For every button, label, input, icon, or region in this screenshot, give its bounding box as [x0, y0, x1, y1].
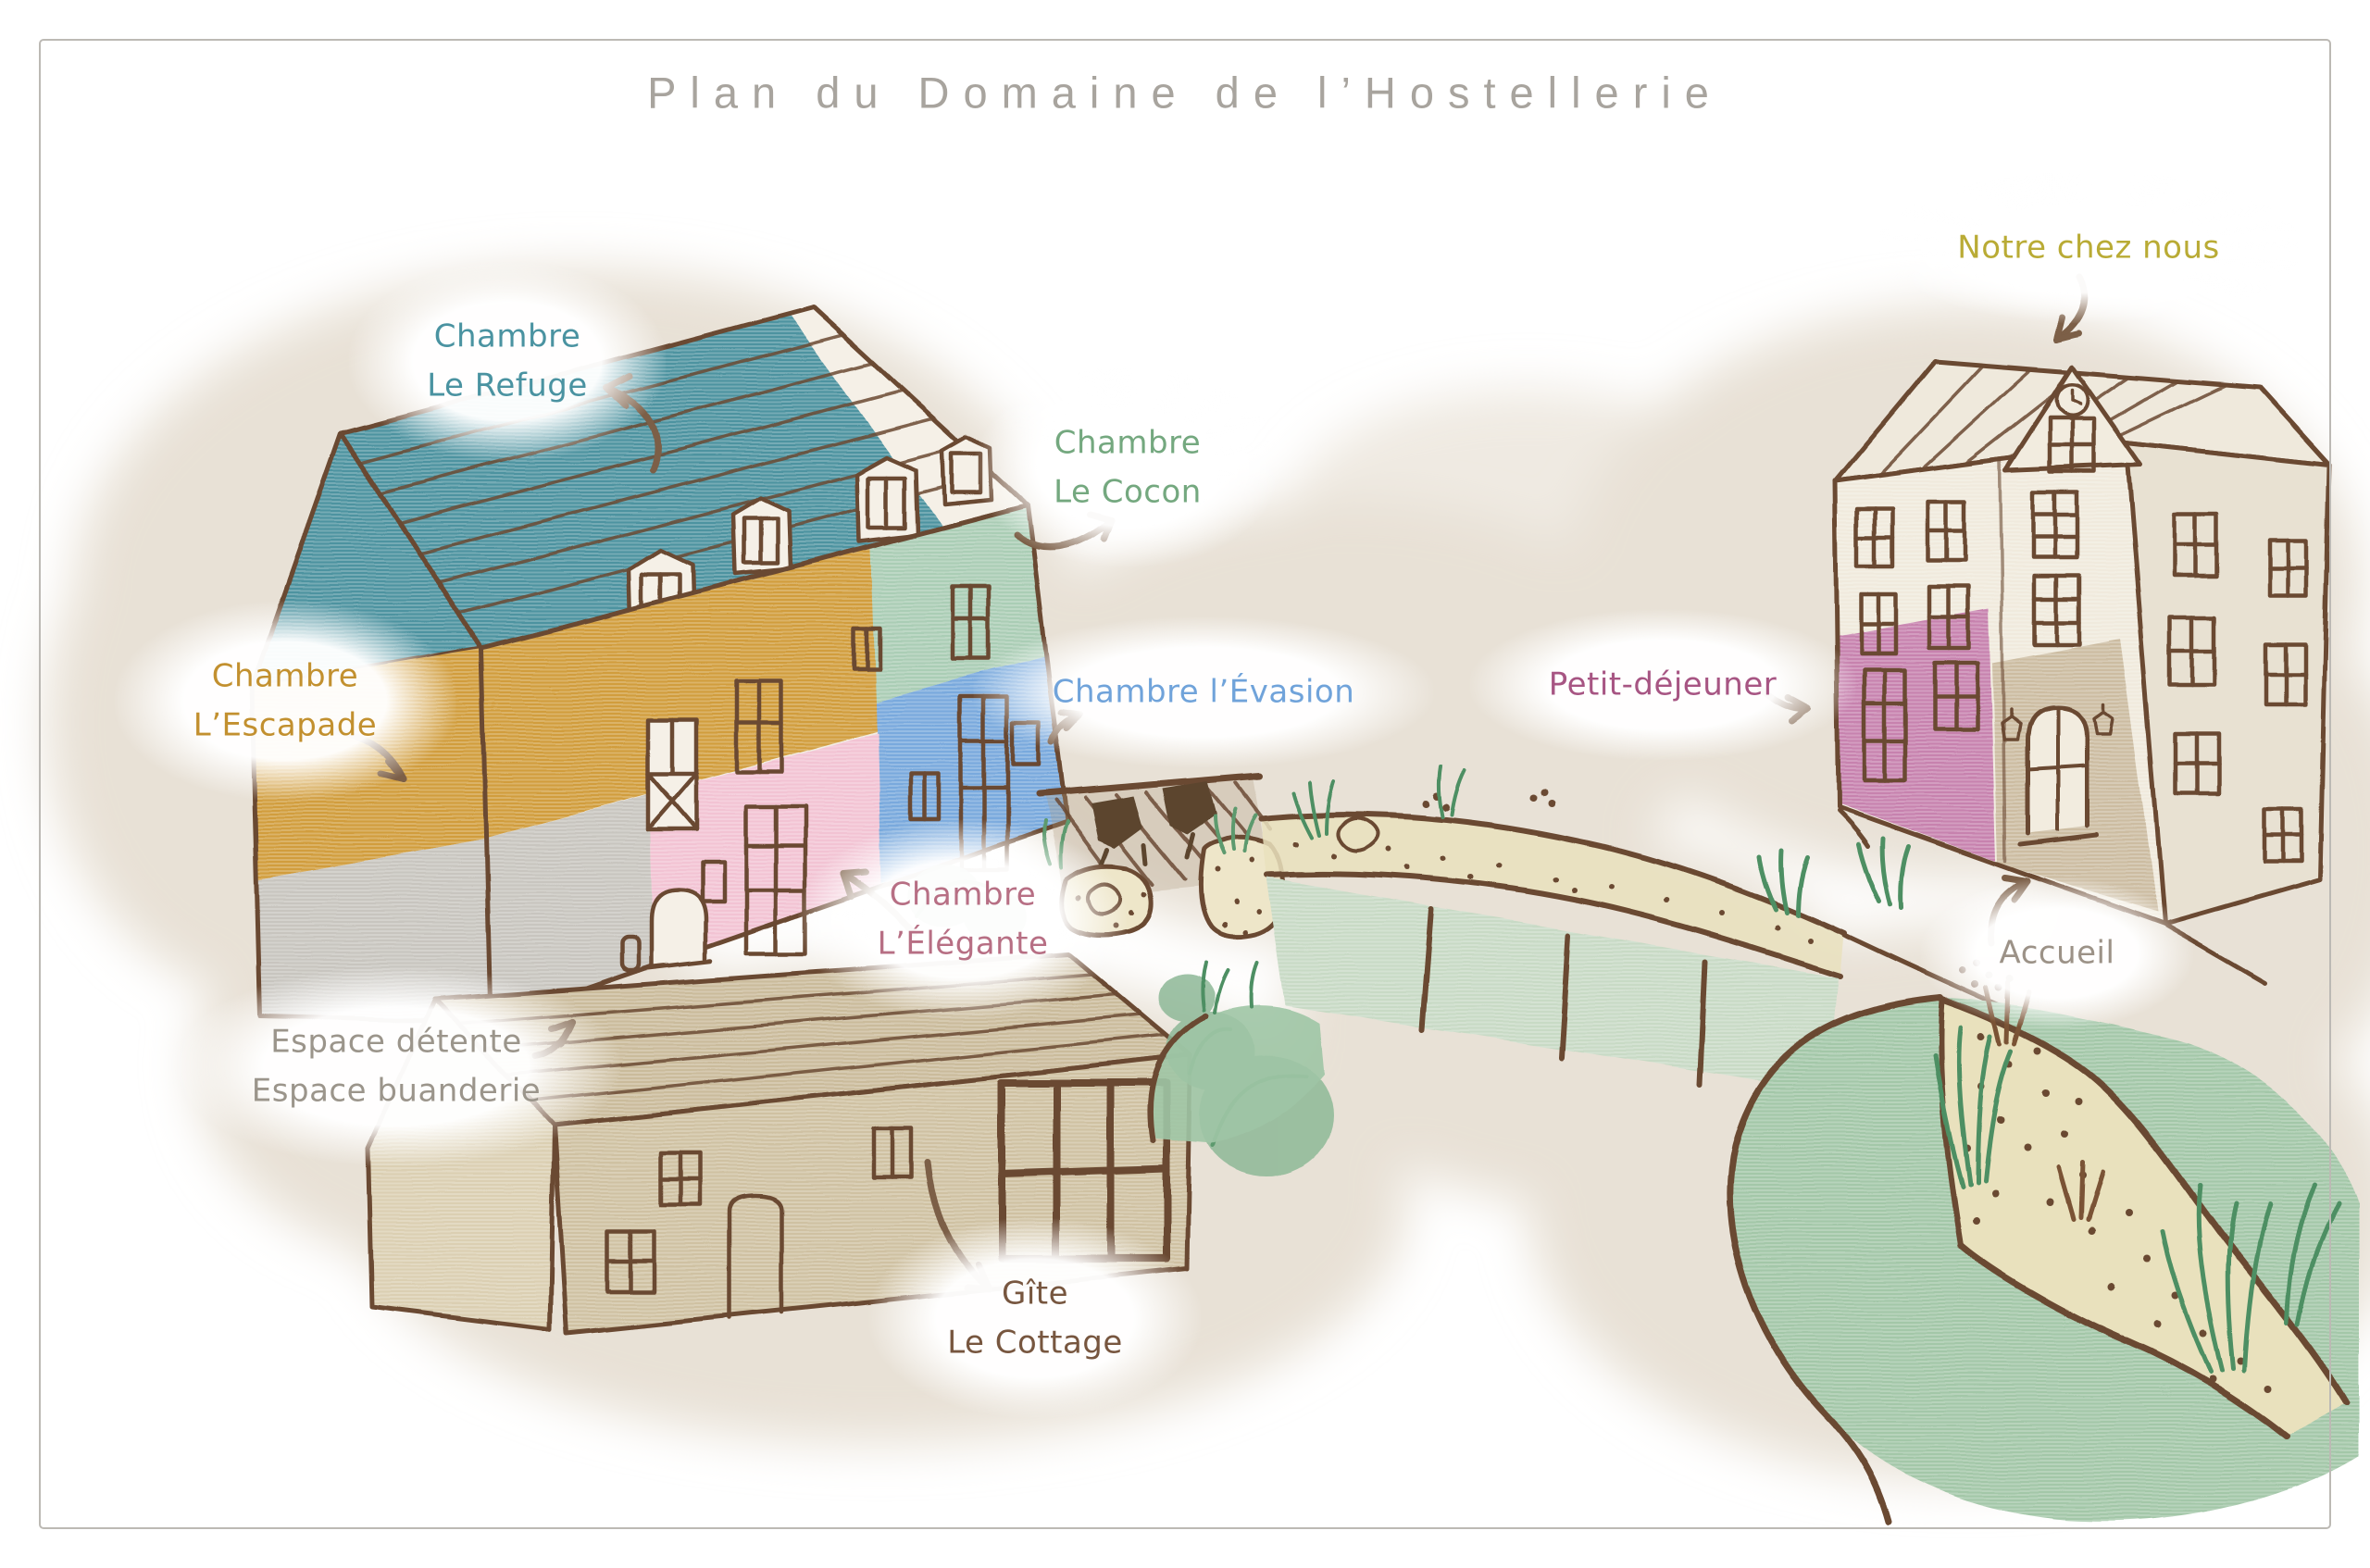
label-notre-chez-nous: Notre chez nous — [1957, 224, 2219, 273]
label-petit-dejeuner: Petit-déjeuner — [1549, 661, 1777, 710]
label-chambre-le-cocon: ChambreLe Cocon — [1054, 418, 1202, 516]
label-chambre-l-escapade: ChambreL’Escapade — [193, 652, 377, 749]
label-espace-detente-buanderie: Espace détenteEspace buanderie — [252, 1017, 541, 1114]
estate-plan-page: Plan du Domaine de l’Hostellerie Chambre… — [0, 0, 2370, 1568]
page-title: Plan du Domaine de l’Hostellerie — [647, 68, 1723, 118]
label-chambre-l-evasion: Chambre l’Évasion — [1053, 668, 1355, 717]
label-chambre-l-elegante: ChambreL’Élégante — [878, 870, 1049, 967]
label-accueil: Accueil — [2000, 929, 2115, 978]
label-gite-le-cottage: GîteLe Cottage — [947, 1269, 1123, 1366]
label-chambre-le-refuge: ChambreLe Refuge — [427, 312, 588, 409]
